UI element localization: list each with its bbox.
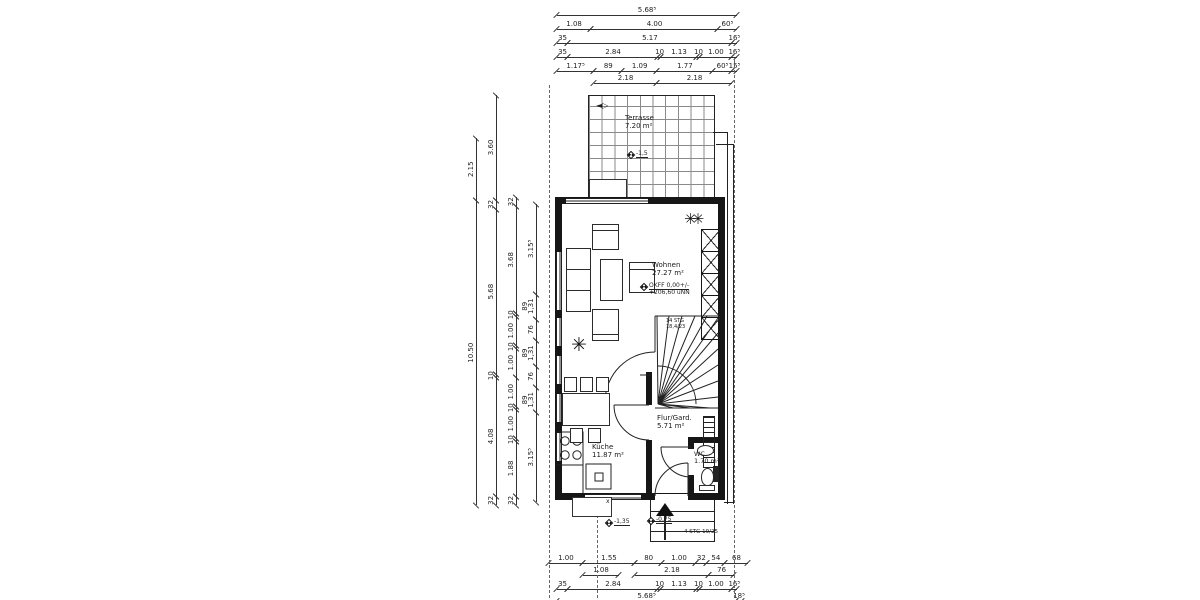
dim-segment: 3.60 xyxy=(484,95,497,200)
dim-segment: 1.88 xyxy=(504,441,517,496)
dim-segment: 1.00 xyxy=(662,551,696,564)
dim-segment: 1.13 xyxy=(661,577,697,590)
entry-stair-note: 4 STG 19/25 xyxy=(684,530,718,536)
dim-segment: 32 xyxy=(484,200,497,209)
dim-chain-bottom-2: 1.082.1876 xyxy=(549,563,748,576)
dim-segment xyxy=(619,563,635,576)
floor-plan-canvas: 5.68⁵ 1.084.0060⁵ 355.1716⁵ 352.84101.13… xyxy=(0,0,1200,600)
cooktop-burner xyxy=(561,451,569,459)
dim-segment: 2.18 xyxy=(594,71,657,84)
dim-segment: 54 xyxy=(707,551,725,564)
dim-segment: 1.00 xyxy=(700,45,732,58)
dim-segment: 2.15 xyxy=(464,138,477,200)
dim-segment: 1.77 xyxy=(657,59,713,72)
neighbour-wall-line xyxy=(713,132,728,133)
dim-chain-bottom-4: 5.68⁵18⁵ xyxy=(557,589,742,600)
dim-chain-top-5: 1.17⁵891.091.7760⁵15⁵ xyxy=(557,59,737,72)
dim-segment xyxy=(734,563,748,576)
stair-curve xyxy=(605,352,655,402)
dim-segment: 3.15⁵ xyxy=(524,412,537,502)
dim-segment: 1.08 xyxy=(583,563,619,576)
dim-segment: 89 xyxy=(594,59,622,72)
sofa xyxy=(566,248,591,312)
dim-segment: 1.13 xyxy=(661,45,697,58)
dim-segment: 3.15⁵ xyxy=(524,204,537,294)
room-label-terrasse: Terrasse 7.20 m² xyxy=(625,114,654,130)
dim-segment: 2.18 xyxy=(635,563,709,576)
kitchen-appliance-detail xyxy=(595,473,603,481)
property-line-left xyxy=(549,85,550,598)
dim-segment: 32 xyxy=(504,197,517,206)
door-kitchen xyxy=(614,405,649,440)
coffee-table xyxy=(600,259,623,301)
dim-segment: 1.00 xyxy=(700,577,732,590)
armchair-bottom xyxy=(592,309,619,341)
dining-chair xyxy=(588,428,601,443)
dining-chair xyxy=(596,377,609,392)
armchair-top xyxy=(592,224,619,250)
dim-chain-top-4: 352.84101.13101.0016⁵ xyxy=(557,45,737,58)
shelf-unit xyxy=(701,229,721,340)
neighbour-wall-line xyxy=(727,132,728,504)
dim-segment: 2.18 xyxy=(657,71,732,84)
dining-chair xyxy=(564,377,577,392)
dim-segment: 3.68 xyxy=(504,206,517,313)
neighbour-wall-line xyxy=(733,144,734,504)
dim-segment xyxy=(557,71,594,84)
slider-door-symbol: ◄▷ xyxy=(596,102,608,110)
dim-segment: 76 xyxy=(524,366,537,388)
dining-chair xyxy=(570,428,583,443)
stair-note: 14 STG 18,4/23 xyxy=(666,319,685,330)
room-label-wc: WC 1.70 m² xyxy=(694,451,719,465)
dim-segment: 1.00 xyxy=(504,316,517,345)
dim-segment: 32 xyxy=(504,496,517,505)
dim-segment: 5.68⁵ xyxy=(557,589,736,600)
dim-segment: 89 1,31 xyxy=(524,294,537,319)
dim-segment: 1.00 xyxy=(504,348,517,377)
level-point-icon xyxy=(627,151,635,159)
dim-chain-left-1: 10.502.15 xyxy=(464,138,477,505)
plant-icon: ✳ xyxy=(571,334,587,356)
dim-chain-left-4: 3.15⁵89 1,317689 1,317689 1,313.15⁵ xyxy=(524,204,537,502)
dim-segment: 4.00 xyxy=(591,17,718,30)
dim-segment: 10 xyxy=(504,345,517,348)
dim-chain-top-2: 1.084.0060⁵ xyxy=(557,17,737,30)
level-marker-okff: OKFF 0,00+/- +206,60 üNN xyxy=(641,283,690,296)
dim-chain-left-2: 324.08105.68323.60 xyxy=(484,95,497,505)
shelf-cell xyxy=(701,318,721,340)
dim-segment: 89 1,31 xyxy=(524,340,537,365)
dim-segment: 1.00 xyxy=(504,377,517,406)
dim-segment: 16⁵ xyxy=(732,45,737,58)
wc-vent-shaft xyxy=(713,466,719,482)
wc-toilet-tank xyxy=(699,485,715,491)
dim-segment: 5.68⁵ xyxy=(557,3,737,16)
dim-chain-top-3: 355.1716⁵ xyxy=(557,31,737,44)
dim-segment: 76 xyxy=(709,563,735,576)
room-label-kueche: Küche 11.87 m² xyxy=(592,443,624,459)
entry-arrow-icon xyxy=(656,503,674,516)
dim-segment: 32 xyxy=(696,551,707,564)
dim-segment: 35 xyxy=(557,577,568,590)
level-point-icon xyxy=(640,283,648,291)
dim-segment: 10 xyxy=(697,45,700,58)
dim-chain-bottom-3: 352.84101.13101.0016⁵ xyxy=(557,577,737,590)
dim-segment: 10 xyxy=(658,577,661,590)
dim-segment: 10 xyxy=(697,577,700,590)
shelf-cell xyxy=(701,230,721,252)
dim-segment: 16⁵ xyxy=(732,31,737,44)
kitchen-appliance xyxy=(586,464,611,489)
dim-segment: 10 xyxy=(504,438,517,441)
room-label-flur: Flur/Gard. 5.71 m² xyxy=(657,414,692,430)
cooktop-burner xyxy=(561,437,569,445)
dim-segment: 35 xyxy=(557,31,568,44)
neighbour-wall-line xyxy=(724,502,734,503)
shelf-cell xyxy=(701,296,721,318)
dim-segment: 1.55 xyxy=(583,551,635,564)
plant-icon: ✳✳ xyxy=(684,210,699,228)
dim-segment: 1.00 xyxy=(549,551,583,564)
dim-segment: 10 xyxy=(504,406,517,409)
dim-segment: 18⁵ xyxy=(736,589,742,600)
dim-segment xyxy=(549,563,583,576)
dim-segment: 10 xyxy=(484,374,497,377)
terrace-mat xyxy=(589,179,627,198)
cooktop-burner xyxy=(573,451,581,459)
dim-chain-top-6: 2.182.18 xyxy=(557,71,737,84)
dim-segment: 10.50 xyxy=(464,200,477,505)
level-point-icon xyxy=(647,517,655,525)
dim-segment: 10 xyxy=(504,313,517,316)
room-label-wohnen: Wohnen 27.27 m² xyxy=(652,261,684,277)
dim-chain-top-total: 5.68⁵ xyxy=(557,3,737,16)
shelf-cell xyxy=(701,252,721,274)
dim-segment: 35 xyxy=(557,45,568,58)
dining-table xyxy=(562,393,610,426)
dim-segment: 1.08 xyxy=(557,17,591,30)
level-marker-entry: -0,75 xyxy=(648,517,672,524)
dim-segment: 80 xyxy=(635,551,662,564)
level-point-icon xyxy=(605,519,613,527)
dim-segment: 5.68 xyxy=(484,209,497,374)
dim-segment: 5.17 xyxy=(568,31,732,44)
dim-chain-bottom-1: 1.001.55801.00325468 xyxy=(549,551,748,564)
porch-mark: x xyxy=(606,499,610,505)
dim-segment: 1.00 xyxy=(504,409,517,438)
dim-segment: 1.17⁵ xyxy=(557,59,594,72)
dim-segment: 60⁵ xyxy=(718,17,737,30)
dim-segment: 10 xyxy=(658,45,661,58)
dim-segment: 2.84 xyxy=(568,45,658,58)
dim-segment: 4.08 xyxy=(484,377,497,496)
dim-chain-left-3: 321.88101.00101.001.00101.00103.6832 xyxy=(504,197,517,505)
dim-segment: 68 xyxy=(725,551,748,564)
dining-chair xyxy=(580,377,593,392)
dim-segment: 32 xyxy=(484,496,497,505)
dim-segment: 89 1,31 xyxy=(524,387,537,412)
dim-segment: 76 xyxy=(524,319,537,341)
level-marker-garden: -1,35 xyxy=(606,519,630,526)
dim-segment: 1.09 xyxy=(622,59,657,72)
level-marker-terrace: -1,5 xyxy=(628,151,648,158)
dim-segment: 2.84 xyxy=(568,577,658,590)
dim-segment: 60⁵ xyxy=(713,59,732,72)
neighbour-wall-line xyxy=(716,144,734,145)
shelf-cell xyxy=(701,274,721,296)
door-entry xyxy=(655,463,688,496)
property-line-mid xyxy=(597,510,598,598)
